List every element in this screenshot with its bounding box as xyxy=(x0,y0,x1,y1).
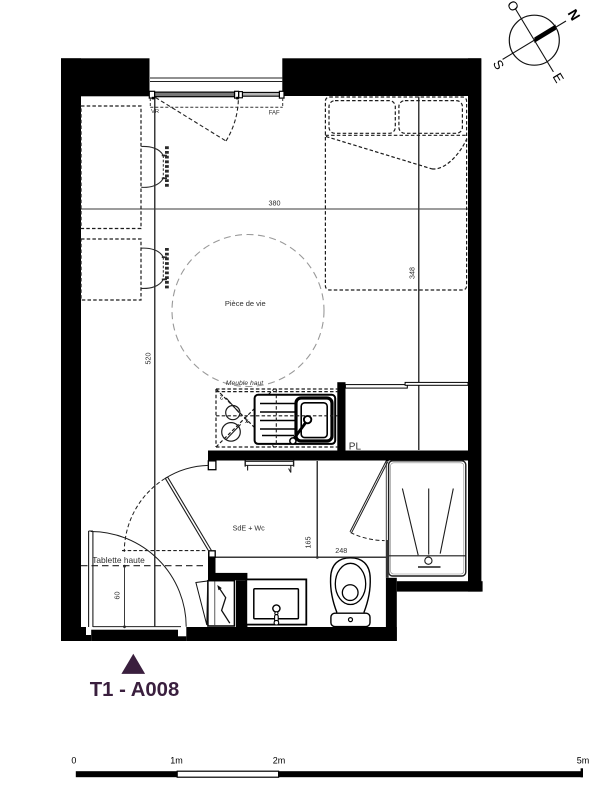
svg-text:Meuble haut: Meuble haut xyxy=(226,380,265,387)
svg-text:0: 0 xyxy=(71,756,76,766)
svg-text:PL: PL xyxy=(349,442,362,453)
svg-text:60: 60 xyxy=(112,592,121,600)
svg-text:520: 520 xyxy=(143,353,152,365)
svg-text:Tablette haute: Tablette haute xyxy=(92,555,145,565)
svg-text:T1 - A008: T1 - A008 xyxy=(90,679,179,701)
svg-text:348: 348 xyxy=(408,267,417,279)
svg-text:5m: 5m xyxy=(577,756,590,766)
svg-text:2m: 2m xyxy=(273,756,286,766)
svg-text:165: 165 xyxy=(303,537,312,549)
svg-text:380: 380 xyxy=(269,199,281,208)
svg-text:FAF: FAF xyxy=(269,111,280,117)
svg-text:1m: 1m xyxy=(170,756,183,766)
svg-text:248: 248 xyxy=(335,546,347,555)
svg-text:Pièce de vie: Pièce de vie xyxy=(225,299,266,308)
svg-text:VR: VR xyxy=(151,109,159,115)
svg-text:SdE + Wc: SdE + Wc xyxy=(233,524,266,533)
svg-text:2: 2 xyxy=(219,393,223,400)
